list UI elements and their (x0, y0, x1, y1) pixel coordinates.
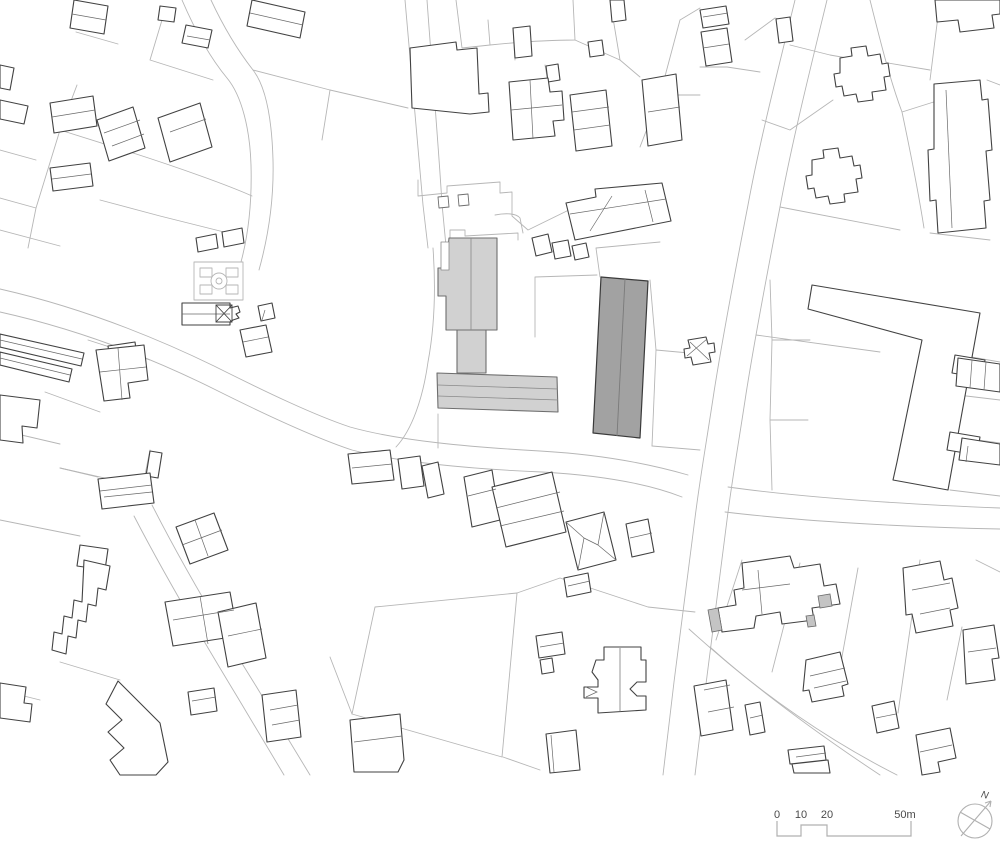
parcel-line (728, 487, 1000, 508)
annex-footprint (818, 594, 832, 608)
hall-building (584, 647, 646, 713)
building-footprint (240, 325, 272, 357)
building-footprint (96, 345, 148, 401)
building-footprint (509, 78, 564, 140)
building-footprint (956, 358, 1000, 392)
north-arrow-crossline (960, 812, 990, 829)
apartment-block (834, 46, 890, 102)
building-footprint (158, 103, 212, 162)
parcel-line (495, 214, 523, 233)
scale-label-20: 20 (821, 809, 833, 821)
parcel-line (650, 280, 656, 446)
parcel-line (130, 152, 252, 196)
scale-label-50m: 50m (894, 809, 915, 821)
school-complex-building (718, 556, 840, 632)
site-plan-drawing: 0 10 20 50m N (0, 0, 1000, 842)
scale-bar-line (777, 821, 911, 836)
building-footprint (410, 42, 489, 114)
building-footprint (610, 0, 626, 22)
building-footprint (540, 658, 554, 674)
building-footprint (97, 107, 145, 161)
building-footprint (350, 714, 404, 772)
site-building-light-bar (437, 373, 558, 412)
building-footprint (588, 40, 604, 57)
building-footprint (0, 100, 28, 124)
building-footprint (422, 462, 444, 498)
building-footprint (398, 456, 424, 489)
building-footprint (106, 681, 168, 775)
building-footprint (564, 573, 591, 597)
building-footprint (0, 395, 40, 443)
scale-label-10: 10 (795, 809, 807, 821)
parcel-line (770, 280, 810, 490)
hip-roof-building (566, 512, 616, 570)
building-footprint (803, 652, 848, 702)
school-building (566, 183, 671, 240)
apartment-block (806, 148, 862, 204)
building-footprint (0, 65, 14, 90)
building-footprint (218, 603, 266, 667)
building-footprint (50, 163, 93, 191)
building-footprint (196, 228, 244, 252)
building-footprint (963, 625, 999, 684)
building-footprint (52, 560, 110, 654)
building-footprint (788, 746, 830, 773)
parcel-line (596, 242, 660, 277)
building-footprint (872, 701, 899, 733)
drawing-element (438, 194, 469, 208)
parcel-line (503, 757, 540, 770)
parcel-line (405, 0, 428, 248)
l-shaped-building (808, 285, 980, 490)
scale-bar: 0 10 20 50m (774, 809, 916, 836)
building-footprint (182, 25, 212, 48)
building-footprint (776, 17, 793, 43)
building-footprint (745, 702, 765, 735)
building-footprint (258, 303, 275, 321)
site-building-light-stem (457, 330, 486, 373)
building-footprint (513, 26, 532, 58)
parcel-line (0, 150, 240, 246)
building-footprint (158, 6, 176, 22)
parcel-line (0, 312, 682, 497)
parcel-line (396, 248, 434, 447)
scale-label-0: 0 (774, 809, 780, 821)
site-plan-page: 0 10 20 50m N (0, 0, 1000, 842)
site-building-dark (593, 277, 648, 438)
building-footprint (50, 96, 97, 133)
building-footprint (262, 690, 301, 742)
parcel-line (211, 273, 227, 289)
parcel-line (535, 275, 597, 337)
north-arrow: N (958, 789, 992, 838)
building-footprint (188, 688, 217, 715)
parcel-line (253, 70, 408, 140)
parcel-line (330, 657, 352, 714)
building-footprint (0, 683, 32, 722)
building-footprint (348, 450, 394, 484)
building-footprint (701, 28, 732, 66)
annex-footprint (806, 615, 816, 627)
building-footprint (935, 0, 1000, 32)
parcel-line (427, 0, 446, 246)
building-footprint (928, 80, 992, 233)
building-footprint (98, 473, 154, 509)
building-footprint (492, 472, 566, 547)
parcel-line (725, 512, 1000, 529)
building-footprint (570, 90, 612, 151)
parcel-line (756, 207, 900, 352)
parcel-line (517, 578, 695, 612)
drawing-element (441, 242, 449, 270)
north-label: N (980, 789, 990, 802)
